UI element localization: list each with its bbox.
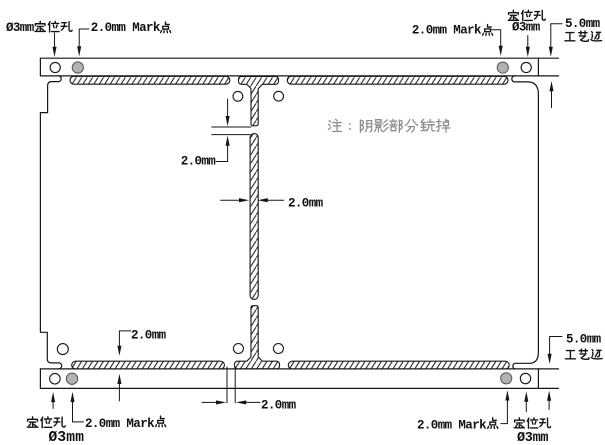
svg-text:Ø3mm: Ø3mm	[517, 431, 548, 445]
svg-text:2.0mm Mark: 2.0mm Mark	[417, 418, 487, 432]
svg-text:2.0mm Mark: 2.0mm Mark	[85, 417, 155, 431]
svg-text:2.0mm: 2.0mm	[288, 197, 324, 211]
svg-text:2.0mm Mark: 2.0mm Mark	[91, 21, 161, 35]
svg-text:2.0mm: 2.0mm	[131, 329, 167, 343]
svg-text:Ø3mm: Ø3mm	[512, 21, 541, 35]
svg-text:5.0mm: 5.0mm	[565, 17, 601, 31]
svg-text:2.0mm Mark: 2.0mm Mark	[412, 24, 482, 38]
svg-text:5.0mm: 5.0mm	[566, 332, 602, 346]
svg-text:2.0mm: 2.0mm	[181, 155, 217, 169]
svg-text:Ø3mm: Ø3mm	[49, 430, 85, 445]
svg-text:2.0mm: 2.0mm	[261, 399, 297, 413]
svg-text:Ø3mm: Ø3mm	[6, 21, 35, 35]
